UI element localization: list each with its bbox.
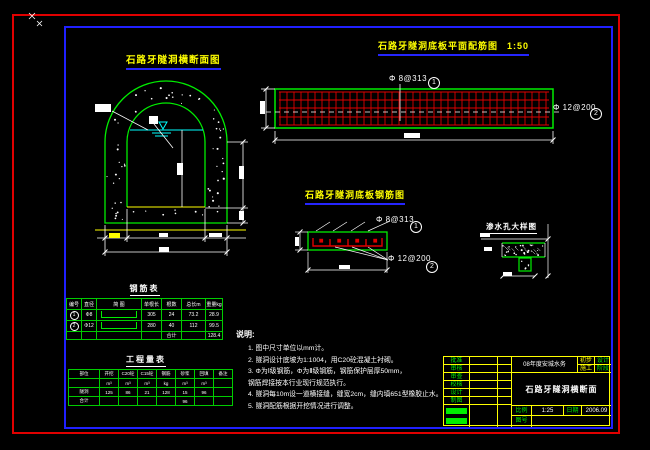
- tb-scale-label: 比例: [512, 406, 532, 416]
- bar-total: 73.2: [182, 310, 206, 321]
- rebar-table: 编号 直径 简 图 单根长 根数 总长m 重量kg 1 Φ8 305 24 73…: [66, 298, 223, 340]
- tb-no-value: [532, 416, 611, 427]
- quantity-table-title: 工程量表: [126, 354, 166, 367]
- quantity-cell: 125: [100, 388, 119, 397]
- total-label: 合计: [162, 332, 182, 340]
- quantity-cell: [100, 397, 119, 406]
- col-header: 直径: [82, 299, 97, 310]
- dim-label-blob: [339, 265, 350, 269]
- quantity-cell: 96: [176, 397, 195, 406]
- quantity-cell: [119, 397, 138, 406]
- bar-number: 1: [70, 311, 79, 320]
- note-line: 2. 隧洞设计底坡为1:1004，用C20砼混凝土衬砌。: [236, 355, 451, 367]
- dim-label-blob: [239, 166, 244, 179]
- quantity-cell: 部位: [69, 370, 100, 379]
- plan-bar1-label: Φ 8@313: [389, 74, 427, 83]
- quantity-cell: 86: [119, 388, 138, 397]
- col-header: 简 图: [97, 299, 142, 310]
- notes: 说明: 1. 图中尺寸单位以mm计。2. 隧洞设计底坡为1:1004，用C20砼…: [236, 329, 451, 413]
- quantity-schedule: 工程量表 部位开挖C20砼C15砼钢筋砂浆回填备注 m³m³m³kgm³m³ 隧…: [68, 349, 224, 406]
- quantity-cell: m³: [138, 379, 157, 388]
- tb-project: 08年度安城水务: [512, 357, 578, 373]
- bar-length: 305: [142, 310, 162, 321]
- note-line: 4. 隧洞每10m设一道横接缝，缝宽2cm，缝内填651型橡胶止水。: [236, 389, 451, 401]
- tb-grid: [444, 357, 470, 427]
- quantity-cell: 21: [138, 388, 157, 397]
- quantity-cell: [157, 397, 176, 406]
- bar2-number-bubble: 2: [590, 108, 602, 120]
- table-row: 1 Φ8 305 24 73.2 28.9: [67, 310, 223, 321]
- bar-count: 40: [162, 321, 182, 332]
- bar-shape-sketch: [101, 322, 137, 329]
- col-header: 总长m: [182, 299, 206, 310]
- tb-date-value: 2006.09: [582, 406, 611, 416]
- tunnel-yellow-lines: [95, 207, 246, 230]
- section-bar2-label: Φ 12@200: [388, 254, 431, 263]
- quantity-cell: 隧洞: [69, 388, 100, 397]
- tb-grid: [470, 357, 498, 427]
- title-slab-section: 石路牙隧洞底板钢筋图: [305, 188, 405, 205]
- leader-label-blob: [95, 104, 111, 112]
- dim-label-blob: [159, 247, 169, 252]
- quantity-cell: C15砼: [138, 370, 157, 379]
- water-level: [130, 122, 203, 136]
- bar1-number-bubble: 1: [410, 221, 422, 233]
- leader-label-blob: [149, 116, 158, 124]
- dim-label-blob: [159, 233, 168, 237]
- quantity-cell: 钢筋: [157, 370, 176, 379]
- quantity-cell: [214, 397, 233, 406]
- rebar-schedule: 钢筋表 编号 直径 简 图 单根长 根数 总长m 重量kg 1 Φ8 305 2…: [66, 278, 223, 340]
- quantity-cell: [69, 379, 100, 388]
- dim-label-blob: [109, 233, 120, 238]
- quantity-cell: C20砼: [119, 370, 138, 379]
- col-header: 根数: [162, 299, 182, 310]
- rebar-mesh: [279, 92, 549, 125]
- table-row: 隧洞12586211281596: [69, 388, 233, 397]
- quantity-cell: m³: [119, 379, 138, 388]
- tunnel-cross-section: [105, 81, 227, 223]
- bar-dia: Φ8: [82, 310, 97, 321]
- rebar-table-title: 钢筋表: [130, 283, 160, 296]
- quantity-cell: kg: [157, 379, 176, 388]
- tb-green-bar: [446, 408, 467, 414]
- dim-label-blob: [484, 247, 492, 251]
- quantity-cell: m³: [100, 379, 119, 388]
- bar-weight: 28.9: [206, 310, 223, 321]
- quantity-cell: [138, 397, 157, 406]
- note-line: 3. Φ为Ⅰ级钢筋，Φ为Ⅱ级钢筋，钢筋保护层厚50mm，: [236, 366, 451, 378]
- quantity-cell: 96: [195, 388, 214, 397]
- bar-shape-sketch: [101, 311, 137, 318]
- quantity-cell: 砂浆: [176, 370, 195, 379]
- quantity-table: 部位开挖C20砼C15砼钢筋砂浆回填备注 m³m³m³kgm³m³ 隧洞1258…: [68, 369, 233, 406]
- note-line: 5. 隧洞配筋根据开挖情况进行调整。: [236, 401, 451, 413]
- bar-total: 112: [182, 321, 206, 332]
- quantity-cell: [214, 379, 233, 388]
- title-slab-plan: 石路牙隧洞底板平面配筋图1:50: [378, 39, 529, 56]
- quantity-cell: 回填: [195, 370, 214, 379]
- title-weep-detail: 渗水孔大样图: [486, 221, 537, 234]
- section-bar1-label: Φ 8@313: [376, 215, 414, 224]
- title-tunnel-cross-section: 石路牙隧洞横断面图: [126, 52, 221, 70]
- dim-label-blob: [209, 233, 222, 237]
- tb-date-label: 日期: [564, 406, 582, 416]
- table-row: 2 Φ12 280 40 112 99.5: [67, 321, 223, 332]
- tb-no-label: 图号: [512, 416, 532, 427]
- dim-label-blob: [295, 237, 299, 246]
- quantity-cell: [214, 388, 233, 397]
- quantity-cell: 15: [176, 388, 195, 397]
- bar1-number-bubble: 1: [428, 77, 440, 89]
- cad-drawing-sheet: 石路牙隧洞横断面图 石路牙隧洞底板平面配筋图1:50 石路牙隧洞底板钢筋图 渗水…: [0, 0, 650, 450]
- quantity-cell: m³: [176, 379, 195, 388]
- registration-marks: [29, 13, 42, 26]
- tb-scale-value: 1:25: [532, 406, 564, 416]
- bar-count: 24: [162, 310, 182, 321]
- note-line: 1. 图中尺寸单位以mm计。: [236, 343, 451, 355]
- table-row: 部位开挖C20砼C15砼钢筋砂浆回填备注: [69, 370, 233, 379]
- table-row: 合计96: [69, 397, 233, 406]
- bar-length: 280: [142, 321, 162, 332]
- quantity-cell: 开挖: [100, 370, 119, 379]
- note-line: 钢筋焊接按本行业现行规范执行。: [236, 378, 451, 390]
- quantity-cell: m³: [195, 379, 214, 388]
- tb-stage: 设计: [595, 357, 611, 365]
- plan-scale: 1:50: [507, 41, 529, 51]
- title-block: 批准审核审查校核设计制图 08年度安城水务 初步 设计 施工 阶段 石路牙隧洞横…: [443, 356, 610, 426]
- total-value: 128.4: [206, 332, 223, 340]
- tb-stage: 初步: [578, 357, 595, 365]
- quantity-cell: [195, 397, 214, 406]
- bar2-number-bubble: 2: [426, 261, 438, 273]
- quantity-cell: 合计: [69, 397, 100, 406]
- col-header: 编号: [67, 299, 82, 310]
- bar-number: 2: [70, 322, 79, 331]
- col-header: 重量kg: [206, 299, 223, 310]
- concrete-speckles: [106, 87, 543, 269]
- tb-stage: 施工: [578, 365, 595, 373]
- dim-label-blob: [503, 272, 512, 276]
- bar-dia: Φ12: [82, 321, 97, 332]
- dim-label-blob: [239, 211, 244, 220]
- quantity-cell: 备注: [214, 370, 233, 379]
- tb-stage: 阶段: [595, 365, 611, 373]
- table-row: 合计 128.4: [67, 332, 223, 340]
- tb-green-bar: [446, 418, 467, 424]
- slab-section-rebar: [313, 238, 382, 246]
- quantity-cell: 128: [157, 388, 176, 397]
- dim-label-blob: [260, 101, 265, 114]
- bar-weight: 99.5: [206, 321, 223, 332]
- table-row: m³m³m³kgm³m³: [69, 379, 233, 388]
- dim-label-blob: [177, 163, 183, 175]
- col-header: 单根长: [142, 299, 162, 310]
- notes-heading: 说明:: [236, 329, 451, 340]
- tb-drawing-title: 石路牙隧洞横断面: [512, 373, 611, 406]
- tb-grid: [498, 357, 512, 427]
- dim-label-blob: [404, 133, 420, 138]
